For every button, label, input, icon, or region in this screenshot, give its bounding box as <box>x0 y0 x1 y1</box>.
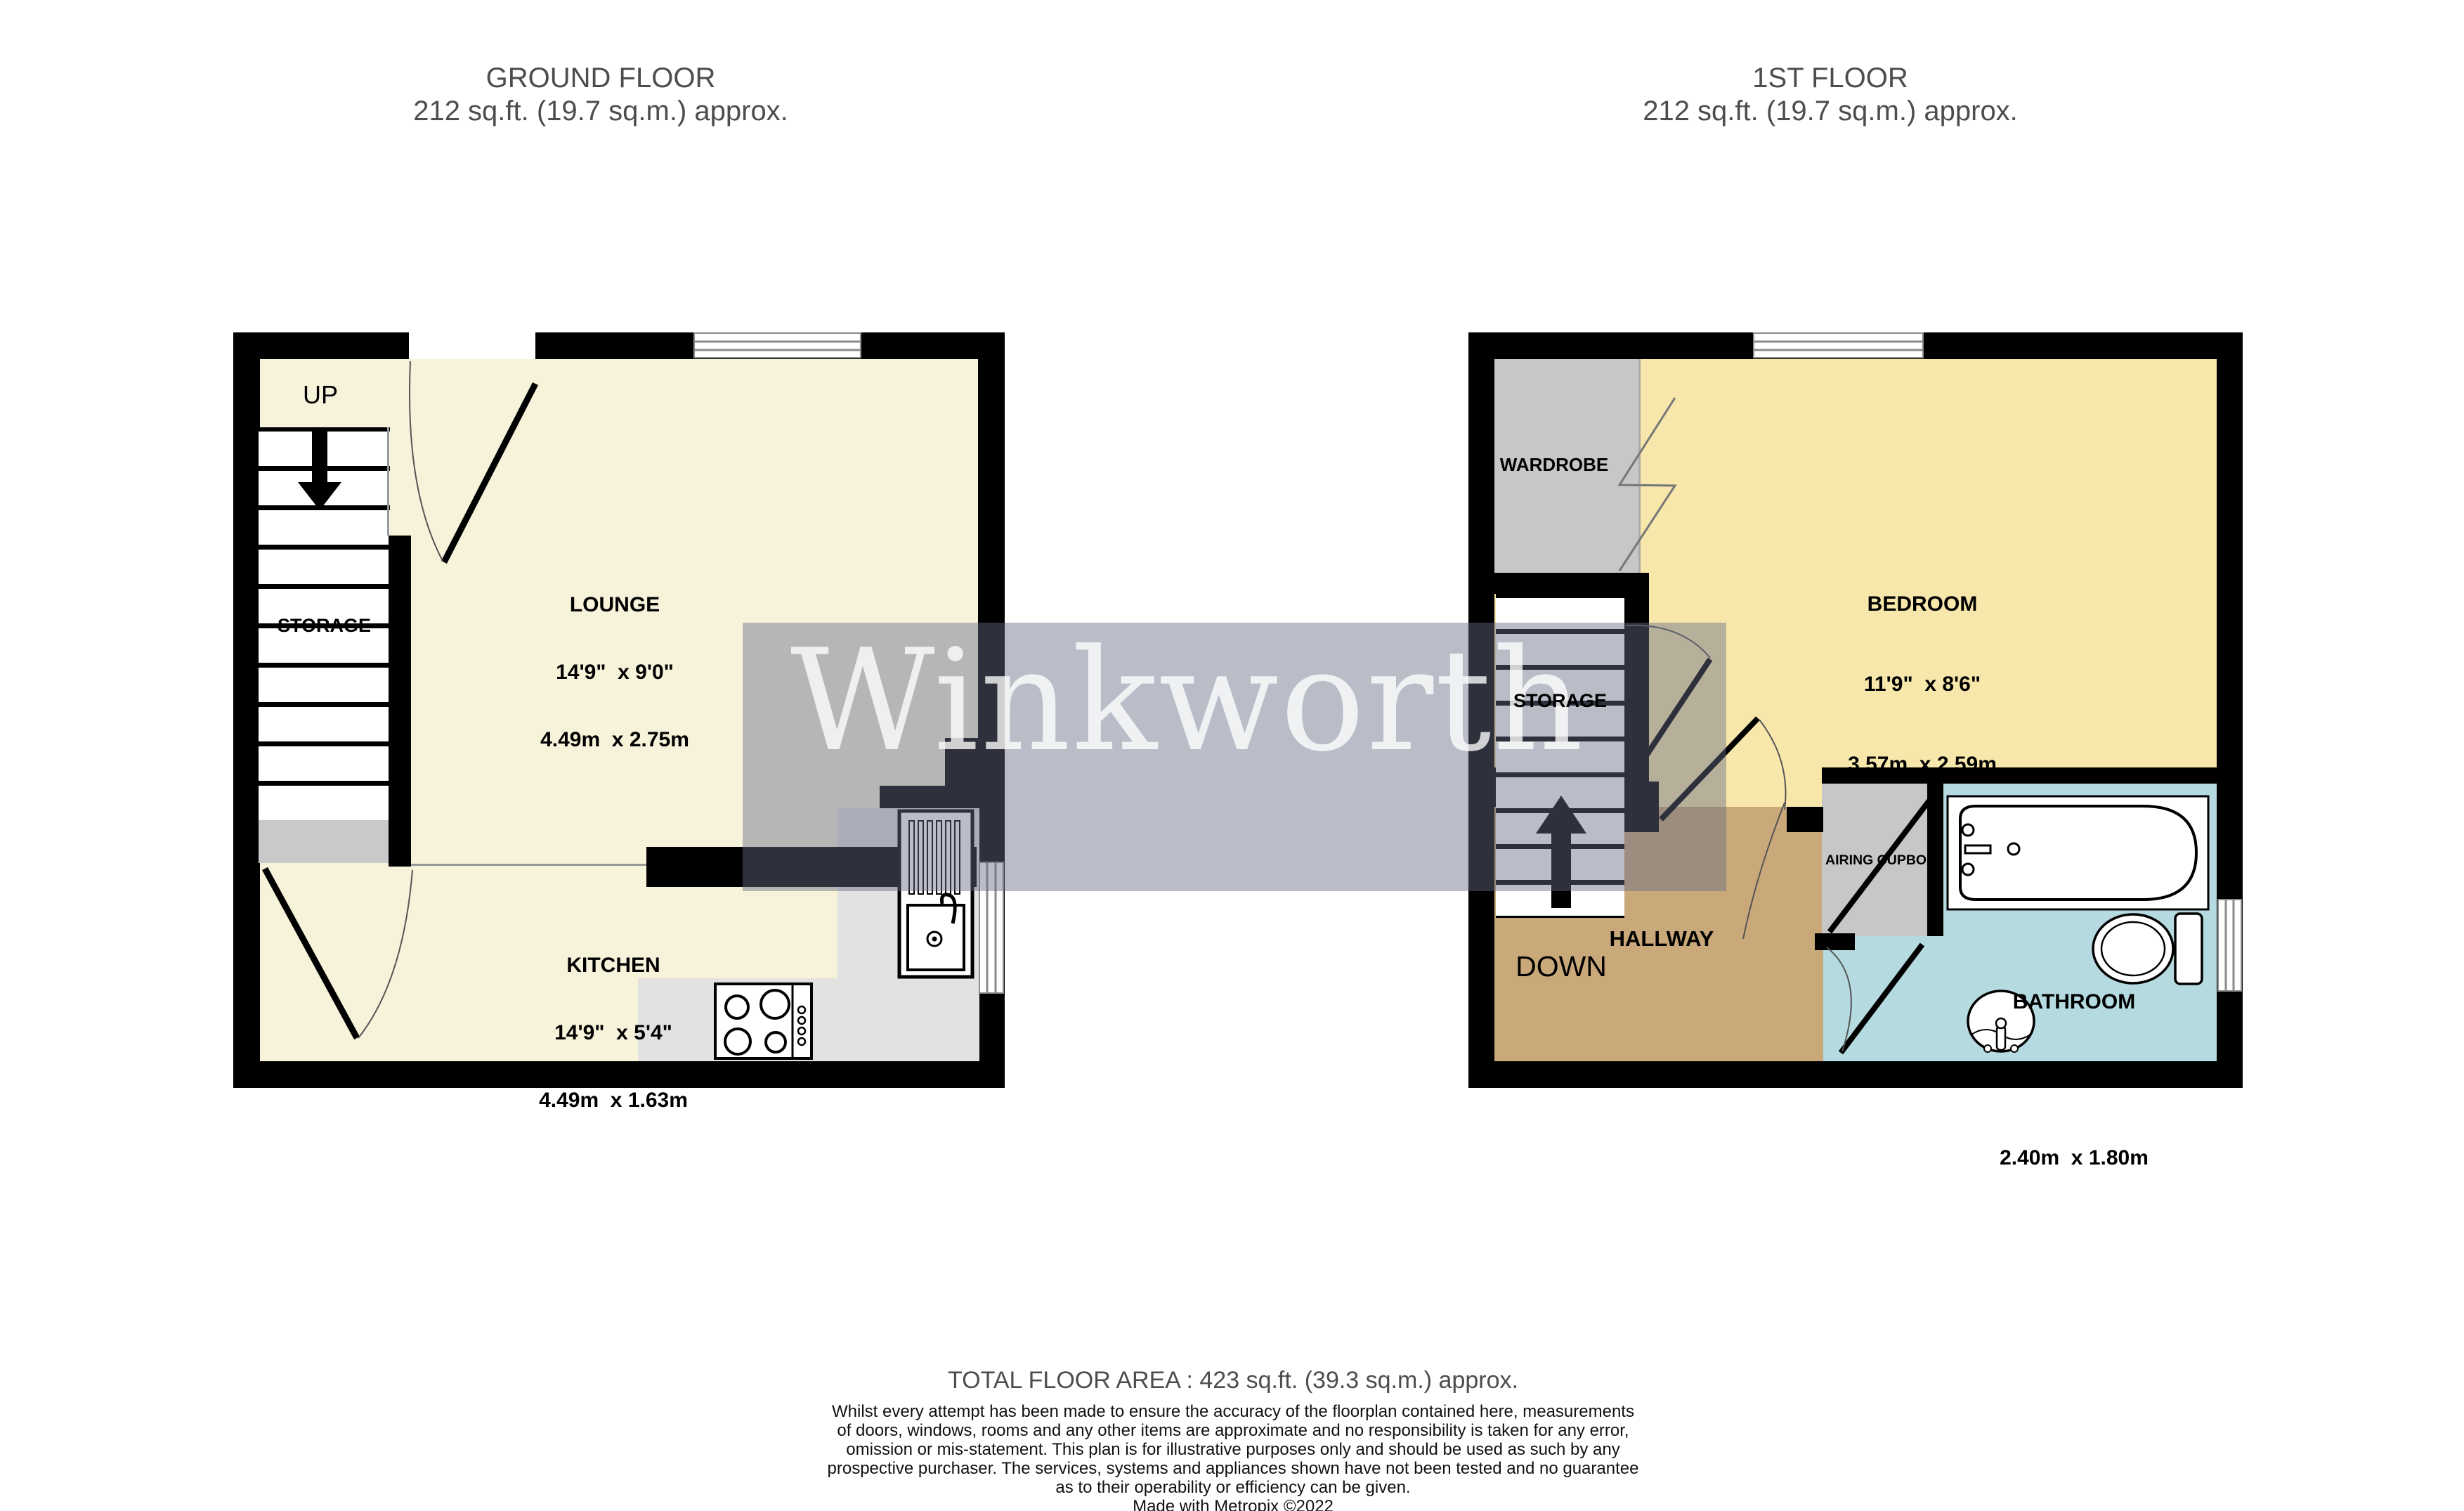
lounge-kitchen-divider-line <box>411 864 646 866</box>
first-floor-title-line2: 212 sq.ft. (19.7 sq.m.) approx. <box>1479 95 2182 128</box>
disclaimer-line: Whilst every attempt has been made to en… <box>741 1402 1725 1421</box>
up-label: UP <box>285 380 356 410</box>
front-door-opening <box>409 332 535 359</box>
bathroom-label: BATHROOM 7'11" x 5'11" 2.40m x 1.80m <box>1934 937 2215 1223</box>
made-with-credit: Made with Metropix ©2022 <box>741 1497 1725 1511</box>
first-floor-title: 1ST FLOOR 212 sq.ft. (19.7 sq.m.) approx… <box>1479 62 2182 128</box>
kitchen-name: KITCHEN <box>473 954 754 977</box>
cupboard-bottom-stub <box>1815 933 1855 950</box>
bathroom-floor-lower <box>1823 936 1943 1061</box>
total-floor-area: TOTAL FLOOR AREA : 423 sq.ft. (39.3 sq.m… <box>882 1367 1584 1394</box>
disclaimer-line: omission or mis-statement. This plan is … <box>741 1440 1725 1459</box>
down-label: DOWN <box>1477 950 1645 983</box>
stair-side-wall-ground <box>389 536 411 867</box>
storage-label-ground: STORAGE <box>259 615 390 637</box>
wardrobe-label: WARDROBE <box>1484 454 1624 476</box>
bedroom-dims-imperial: 11'9" x 8'6" <box>1782 671 2063 698</box>
disclaimer-line: of doors, windows, rooms and any other i… <box>741 1421 1725 1440</box>
bathroom-name: BATHROOM <box>1934 989 2215 1015</box>
bedroom-name: BEDROOM <box>1782 591 2063 618</box>
stair-open-edge-line <box>387 427 389 536</box>
kitchen-label: KITCHEN 14'9" x 5'4" 4.49m x 1.63m <box>473 909 754 1157</box>
watermark-text: Winkworth <box>790 631 1584 772</box>
bedroom-dims-metric: 3.57m x 2.59m <box>1782 751 2063 778</box>
kitchen-dims-imperial: 14'9" x 5'4" <box>473 1022 754 1044</box>
wardrobe-bottom-wall <box>1494 573 1649 594</box>
hallway-label: HALLWAY <box>1556 926 1767 952</box>
kitchen-dims-metric: 4.49m x 1.63m <box>473 1089 754 1112</box>
stair-landing-ground <box>259 820 390 863</box>
lounge-dims-imperial: 14'9" x 9'0" <box>474 661 755 684</box>
bathroom-dims-imperial: 7'11" x 5'11" <box>1934 1067 2215 1093</box>
bedroom-label: BEDROOM 11'9" x 8'6" 3.57m x 2.59m <box>1782 538 2063 831</box>
lounge-dims-metric: 4.49m x 2.75m <box>474 729 755 751</box>
lounge-name: LOUNGE <box>474 594 755 616</box>
bathroom-dims-metric: 2.40m x 1.80m <box>1934 1145 2215 1171</box>
airing-cupboard-label: AIRING CUPBOARD <box>1824 852 1930 869</box>
storage-label-first: STORAGE <box>1496 690 1624 712</box>
lounge-label: LOUNGE 14'9" x 9'0" 4.49m x 2.75m <box>474 549 755 796</box>
ground-floor-title-line2: 212 sq.ft. (19.7 sq.m.) approx. <box>249 95 952 128</box>
disclaimer: Whilst every attempt has been made to en… <box>741 1402 1725 1511</box>
wardrobe-front-line <box>1638 359 1641 573</box>
disclaimer-line: as to their operability or efficiency ca… <box>741 1478 1725 1497</box>
disclaimer-line: prospective purchaser. The services, sys… <box>741 1459 1725 1478</box>
ground-floor-title: GROUND FLOOR 212 sq.ft. (19.7 sq.m.) app… <box>249 62 952 128</box>
floorplan-page: GROUND FLOOR 212 sq.ft. (19.7 sq.m.) app… <box>0 0 2464 1511</box>
first-floor-title-line1: 1ST FLOOR <box>1479 62 2182 95</box>
ground-floor-title-line1: GROUND FLOOR <box>249 62 952 95</box>
